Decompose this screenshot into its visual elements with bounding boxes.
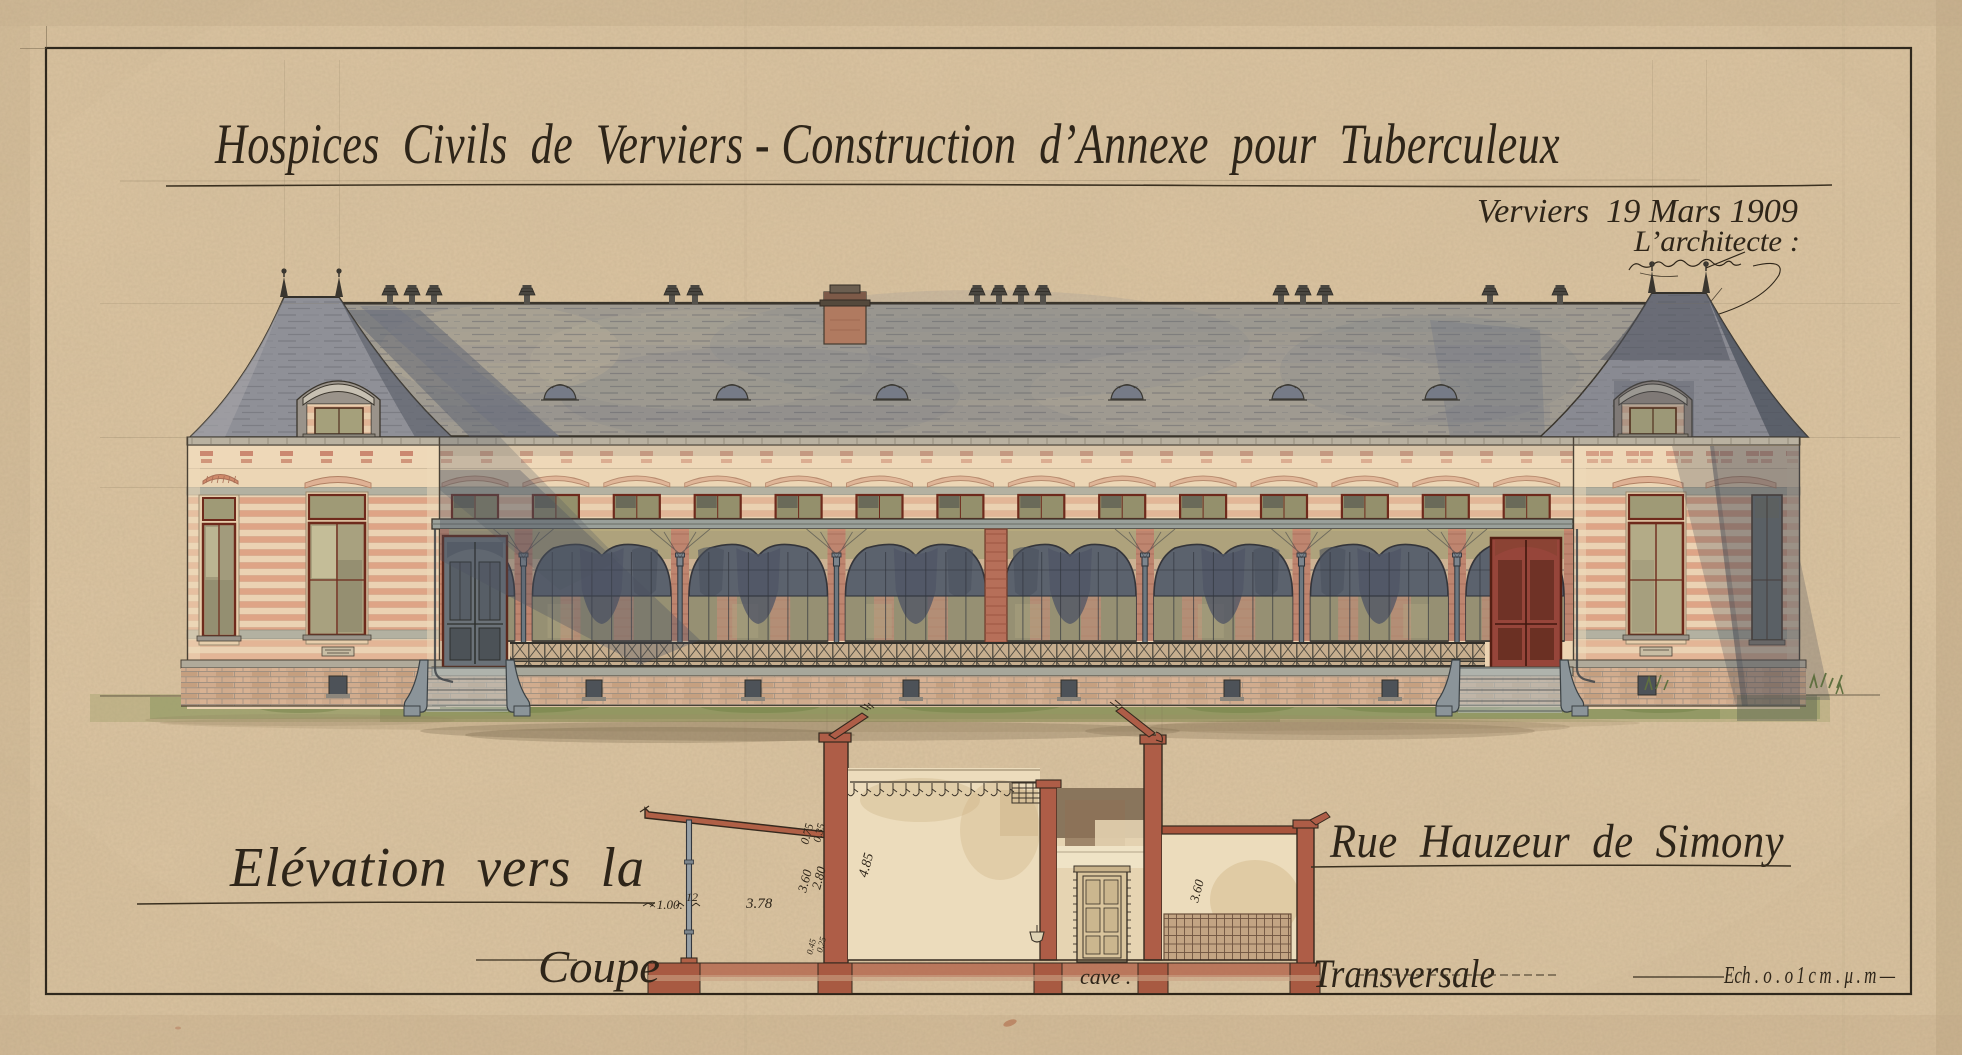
svg-text:Hospices Civils de Verviers: Hospices Civils de Verviers - Constructi… (214, 113, 1560, 176)
svg-text:cave .: cave . (1080, 964, 1131, 989)
svg-text:Ech . o . o 1 c m . μ . m —: Ech . o . o 1 c m . μ . m — (1723, 963, 1895, 989)
svg-text:Elévation vers la: Elévation vers la (229, 837, 645, 899)
svg-text:Transversale: Transversale (1313, 951, 1495, 996)
svg-text:3.78: 3.78 (745, 896, 773, 912)
svg-text:Coupe: Coupe (538, 941, 660, 992)
svg-text:Rue Hauzeur de Simony: Rue Hauzeur de Simony (1329, 815, 1784, 868)
svg-text:12: 12 (686, 890, 698, 904)
svg-text:L’architecte :: L’architecte : (1633, 225, 1800, 258)
